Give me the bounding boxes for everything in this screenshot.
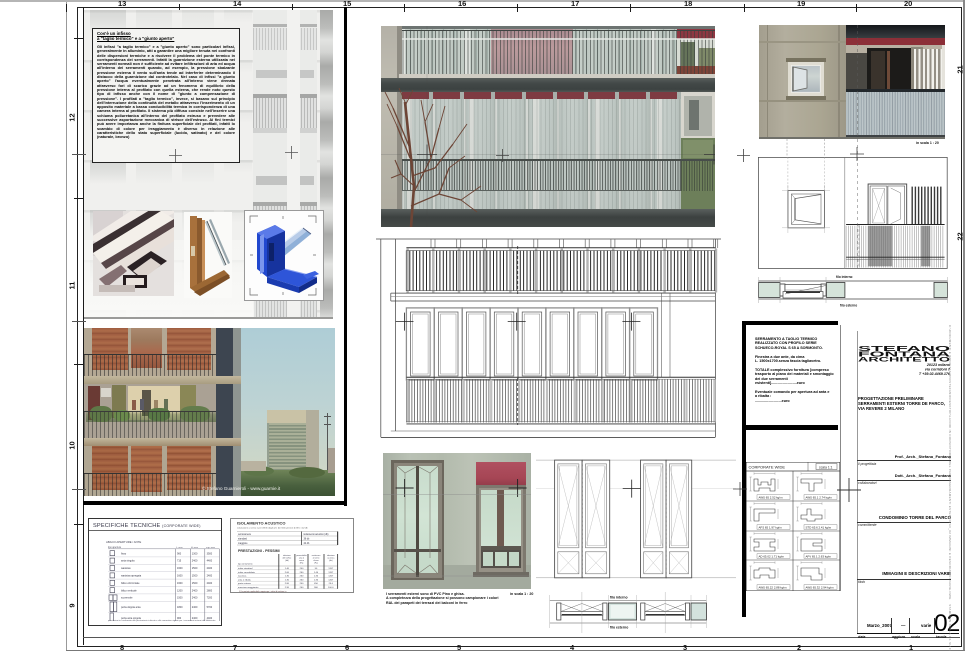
- svg-text:1300: 1300: [192, 552, 198, 555]
- svg-text:715: 715: [177, 560, 182, 563]
- svg-text:maggiore: maggiore: [238, 542, 248, 545]
- svg-text:42 db: 42 db: [303, 543, 309, 545]
- svg-text:2400: 2400: [207, 575, 213, 578]
- svg-text:(db): (db): [285, 560, 289, 562]
- svg-text:38 db: 38 db: [303, 539, 309, 541]
- svg-text:2800: 2800: [207, 589, 213, 592]
- svg-text:vetrocamera: vetrocamera: [238, 533, 251, 536]
- svg-text:isolamento acustico (db): isolamento acustico (db): [303, 533, 328, 536]
- svg-text:1500: 1500: [177, 597, 183, 600]
- svg-text:PRESTAZIONI - PESSIMI: PRESTAZIONI - PESSIMI: [238, 549, 280, 553]
- svg-text:1800: 1800: [177, 606, 183, 609]
- svg-text:wasistas: wasistas: [238, 575, 247, 578]
- svg-text:5700: 5700: [207, 606, 213, 609]
- svg-text:filo esterno: filo esterno: [840, 304, 857, 308]
- svg-text:porta doppia anta: porta doppia anta: [121, 606, 141, 609]
- svg-text:7200: 7200: [207, 597, 213, 600]
- svg-text:900: 900: [177, 552, 182, 555]
- svg-text:2400: 2400: [192, 560, 198, 563]
- svg-text:filo interno: filo interno: [836, 275, 853, 279]
- svg-text:1600: 1600: [177, 582, 183, 585]
- svg-text:AFV 65.1 2.63 kg/m: AFV 65.1 2.63 kg/m: [806, 554, 832, 558]
- svg-text:filo esterno: filo esterno: [610, 626, 628, 630]
- svg-text:1600: 1600: [177, 575, 183, 578]
- svg-text:1500: 1500: [192, 567, 198, 570]
- svg-text:wasistas apregata: wasistas apregata: [121, 575, 142, 578]
- svg-text:1600: 1600: [177, 567, 183, 570]
- svg-text:anta singola: anta singola: [121, 560, 135, 563]
- svg-text:2400: 2400: [192, 597, 198, 600]
- svg-text:2400: 2400: [192, 589, 198, 592]
- svg-text:valutazione ai sensi e per eff: valutazione ai sensi e per effetti degli…: [237, 527, 308, 530]
- svg-text:bilico verticale: bilico verticale: [121, 589, 137, 592]
- svg-text:3500: 3500: [207, 552, 213, 555]
- svg-text:4400: 4400: [207, 560, 213, 563]
- svg-text:porta esterna: porta esterna: [238, 582, 252, 585]
- svg-text:(Pa): (Pa): [299, 563, 303, 565]
- svg-text:scala 1:1: scala 1:1: [819, 465, 833, 469]
- svg-text:telaio standard: telaio standard: [238, 567, 253, 570]
- svg-text:1500: 1500: [192, 575, 198, 578]
- svg-text:wasistas: wasistas: [121, 567, 131, 570]
- svg-text:2400: 2400: [192, 606, 198, 609]
- svg-text:(Pa): (Pa): [314, 563, 318, 565]
- svg-text:massima maggiorata: massima maggiorata: [238, 586, 259, 589]
- svg-text:scorrevole: scorrevole: [121, 597, 133, 600]
- svg-text:(db): (db): [329, 560, 333, 562]
- svg-text:filo interno: filo interno: [610, 596, 628, 600]
- svg-text:1200: 1200: [177, 589, 183, 592]
- svg-text:tipo serramento: tipo serramento: [238, 563, 253, 566]
- svg-text:AWS 65.1 2.74 kg/m: AWS 65.1 2.74 kg/m: [806, 495, 833, 499]
- svg-text:anta e ribalta: anta e ribalta: [238, 578, 251, 581]
- svg-text:standard: standard: [238, 538, 248, 541]
- svg-text:2400: 2400: [207, 567, 213, 570]
- svg-text:fisso: fisso: [121, 552, 127, 555]
- svg-text:AWS 65 2.52 kg/m: AWS 65 2.52 kg/m: [759, 495, 784, 499]
- svg-text:AWS 65.22 2.88 kg/m: AWS 65.22 2.88 kg/m: [759, 585, 788, 589]
- svg-text:1500: 1500: [192, 582, 198, 585]
- svg-text:telaio consolidato: telaio consolidato: [238, 571, 256, 574]
- svg-text:AD 65.02 1.71 kg/m: AD 65.02 1.71 kg/m: [759, 554, 785, 558]
- svg-text:CORPORATE WIDE: CORPORATE WIDE: [749, 465, 786, 470]
- svg-text:STD 65.6 2.41 kg/m: STD 65.6 2.41 kg/m: [806, 525, 832, 529]
- svg-text:ISOLAMENTO ACUSTICO: ISOLAMENTO ACUSTICO: [237, 521, 285, 526]
- svg-text:bilico orizzontale: bilico orizzontale: [121, 582, 140, 585]
- svg-text:AWS 65.32 2.94 kg/m: AWS 65.32 2.94 kg/m: [806, 585, 835, 589]
- svg-text:2400: 2400: [207, 582, 213, 585]
- svg-text:AFS 65 1.97 kg/m: AFS 65 1.97 kg/m: [759, 525, 783, 529]
